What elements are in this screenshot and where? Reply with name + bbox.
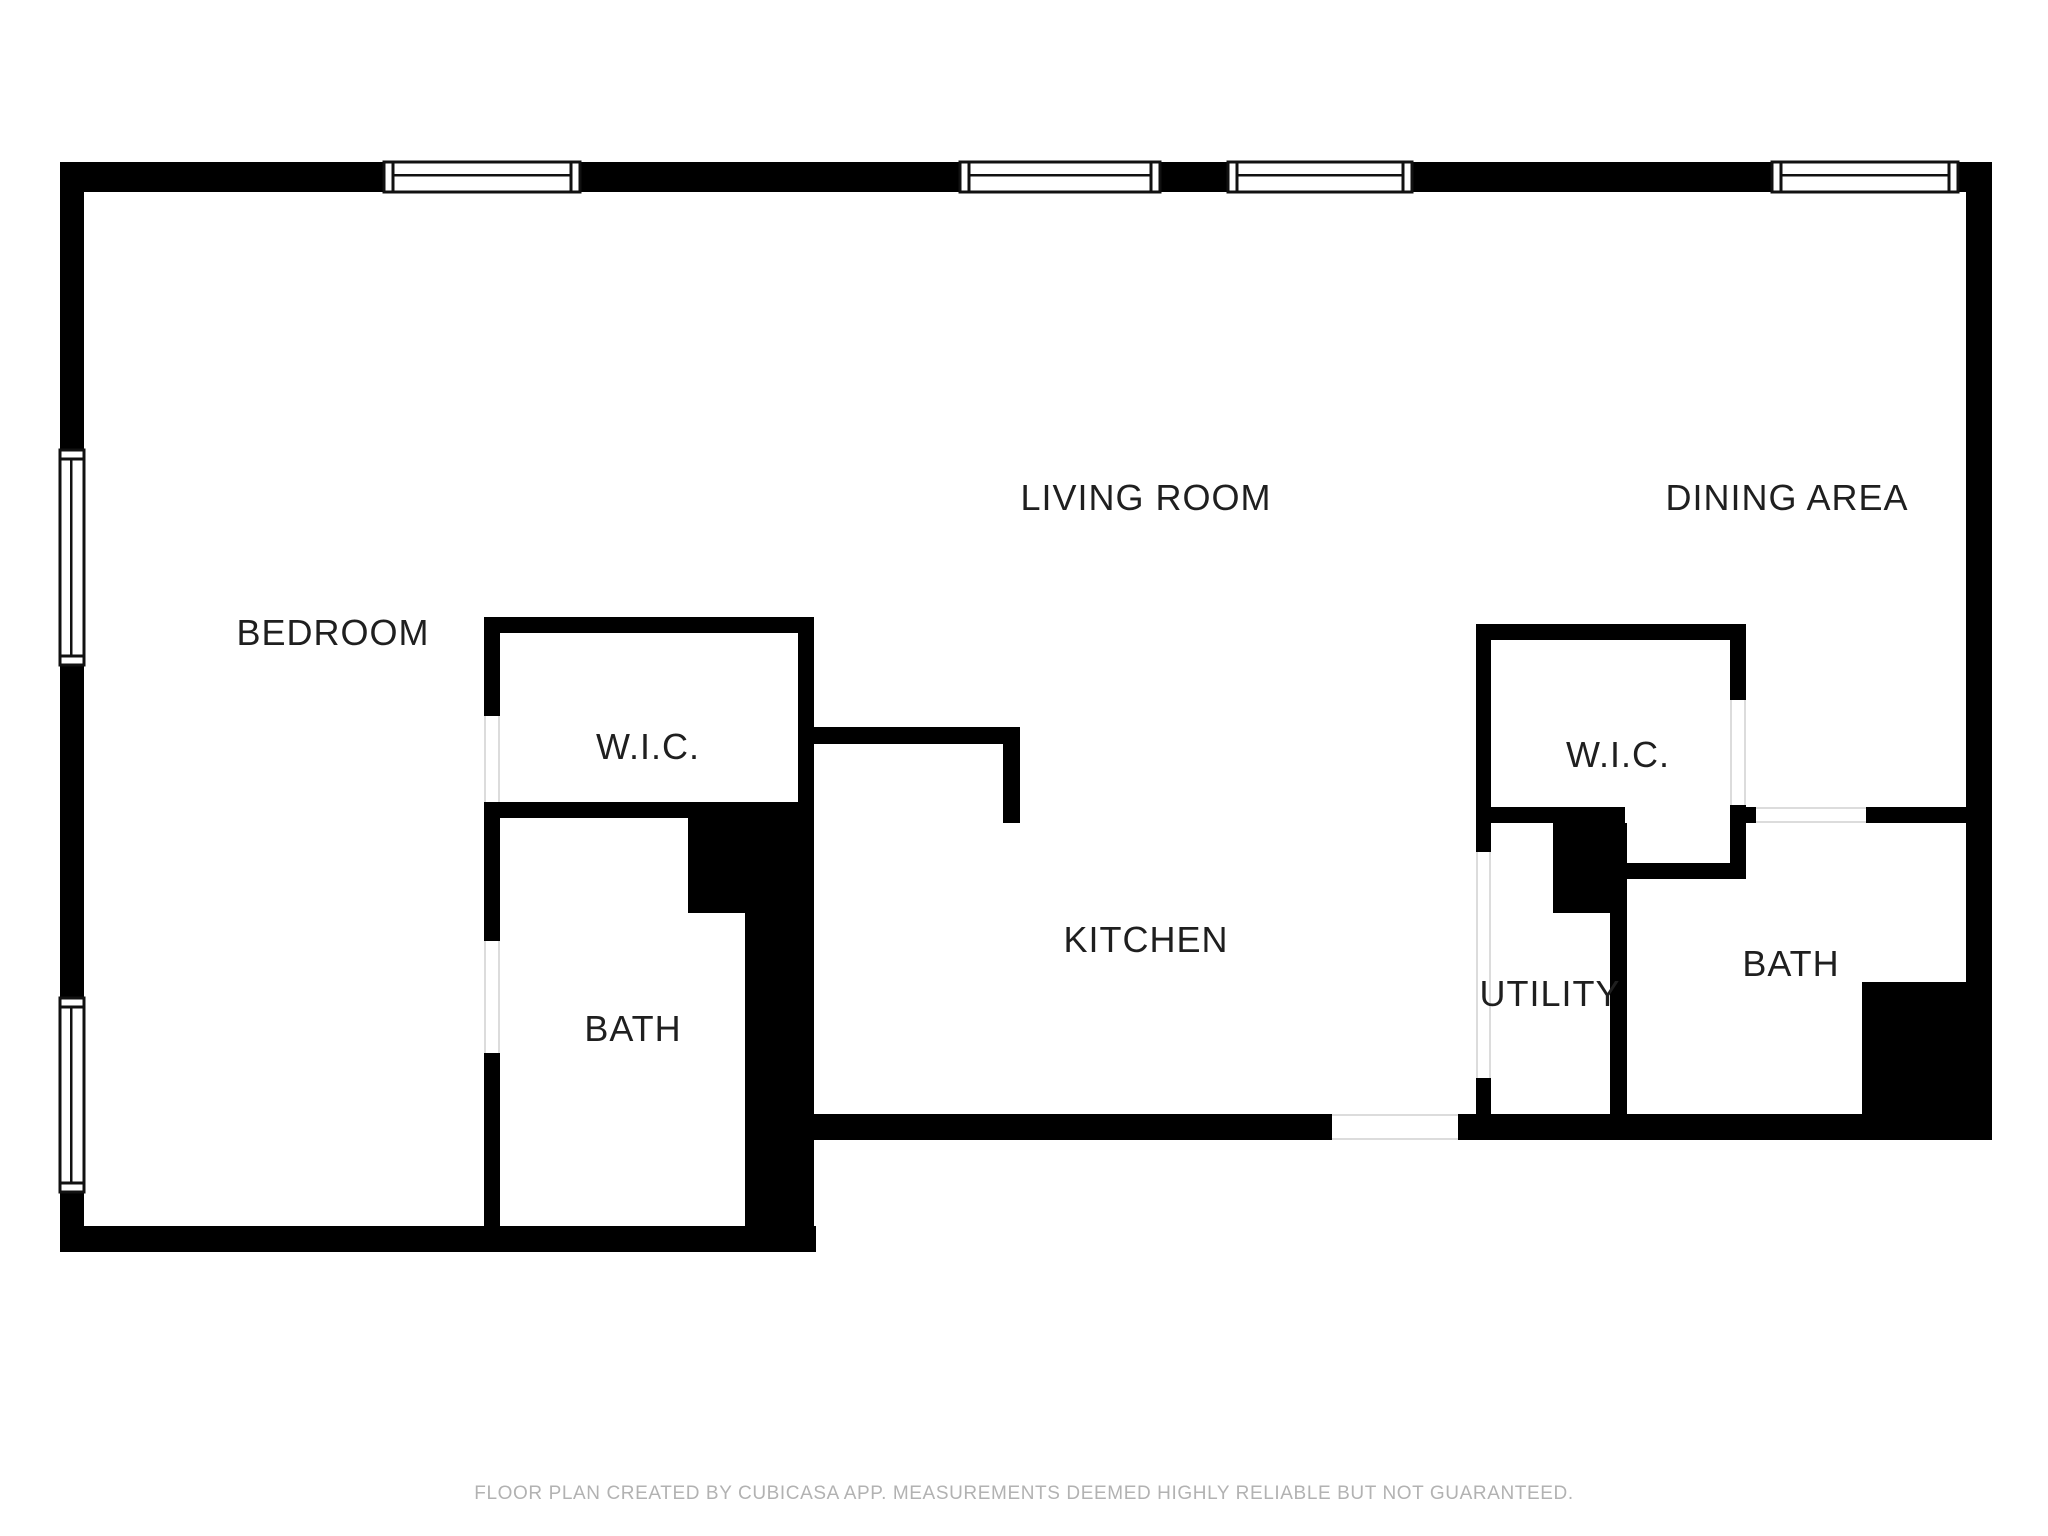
wall-bedroom-divider-3 [484,1053,500,1252]
wall-bath-left-right-wall [745,913,814,1252]
wall-exterior-bottom-right-1 [800,1114,1332,1140]
wall-exterior-left-2 [60,665,84,998]
door-opening-bath-right [1756,807,1866,823]
wall-wic-right-bottom-wall [1491,807,1625,823]
room-label-dining-area: DINING AREA [1665,477,1908,519]
wall-wic-right-left-wall [1476,624,1491,852]
door-opening-wic-right [1730,700,1746,805]
wall-exterior-left-1 [60,162,84,450]
wall-wic-left-right-wall [798,617,814,818]
door-opening-entry [1332,1114,1458,1140]
wall-bath-right-top-left-wall [1625,863,1730,879]
wall-wic-right-right-wall-2 [1730,805,1746,879]
wall-exterior-right [1966,162,1992,1140]
floor-plan: LIVING ROOMDINING AREABEDROOMW.I.C.W.I.C… [0,0,2048,1536]
wall-exterior-top-4 [1412,162,1772,192]
room-label-bedroom: BEDROOM [236,612,429,654]
wall-bath-right-corner-block [1862,982,1966,1140]
wall-kitchen-wall-horizontal [814,727,1020,744]
wall-bath-right-top-wall-1 [1746,807,1756,823]
wall-utility-left-wall [1476,1078,1491,1140]
door-opening-wic-left [484,716,500,802]
wall-wic-left-bottom-wall [484,802,814,818]
wall-wic-right-right-wall-1 [1730,624,1746,700]
window-top-3 [1228,162,1412,192]
room-label-utility: UTILITY [1479,973,1620,1015]
wall-wic-right-top-wall [1476,624,1746,640]
floor-plan-drawing [0,0,2048,1536]
room-label-wic-right: W.I.C. [1566,734,1670,776]
room-label-living-room: LIVING ROOM [1020,477,1271,519]
wall-exterior-bottom-left [60,1226,816,1252]
door-opening-bath-left [484,941,500,1053]
footer-disclaimer: FLOOR PLAN CREATED BY CUBICASA APP. MEAS… [0,1483,2048,1505]
room-label-bath-right: BATH [1742,943,1839,985]
window-top-2 [960,162,1160,192]
wall-wic-left-top-wall [484,617,814,633]
wall-bedroom-divider-1 [484,617,500,716]
room-label-wic-left: W.I.C. [596,726,700,768]
room-label-kitchen: KITCHEN [1063,919,1228,961]
door-opening-utility [1476,852,1491,1078]
wall-exterior-top-1 [60,162,384,192]
wall-exterior-top-3 [1160,162,1228,192]
room-label-bath-left: BATH [584,1008,681,1050]
wall-bath-left-corner-block [688,818,814,913]
wall-exterior-top-2 [580,162,960,192]
wall-utility-corner-block [1553,823,1627,913]
wall-bedroom-divider-2 [484,802,500,941]
wall-bath-right-top-wall-2 [1866,807,1966,823]
window-top-1 [384,162,580,192]
window-top-4 [1772,162,1958,192]
wall-kitchen-wall-vertical [1003,727,1020,823]
